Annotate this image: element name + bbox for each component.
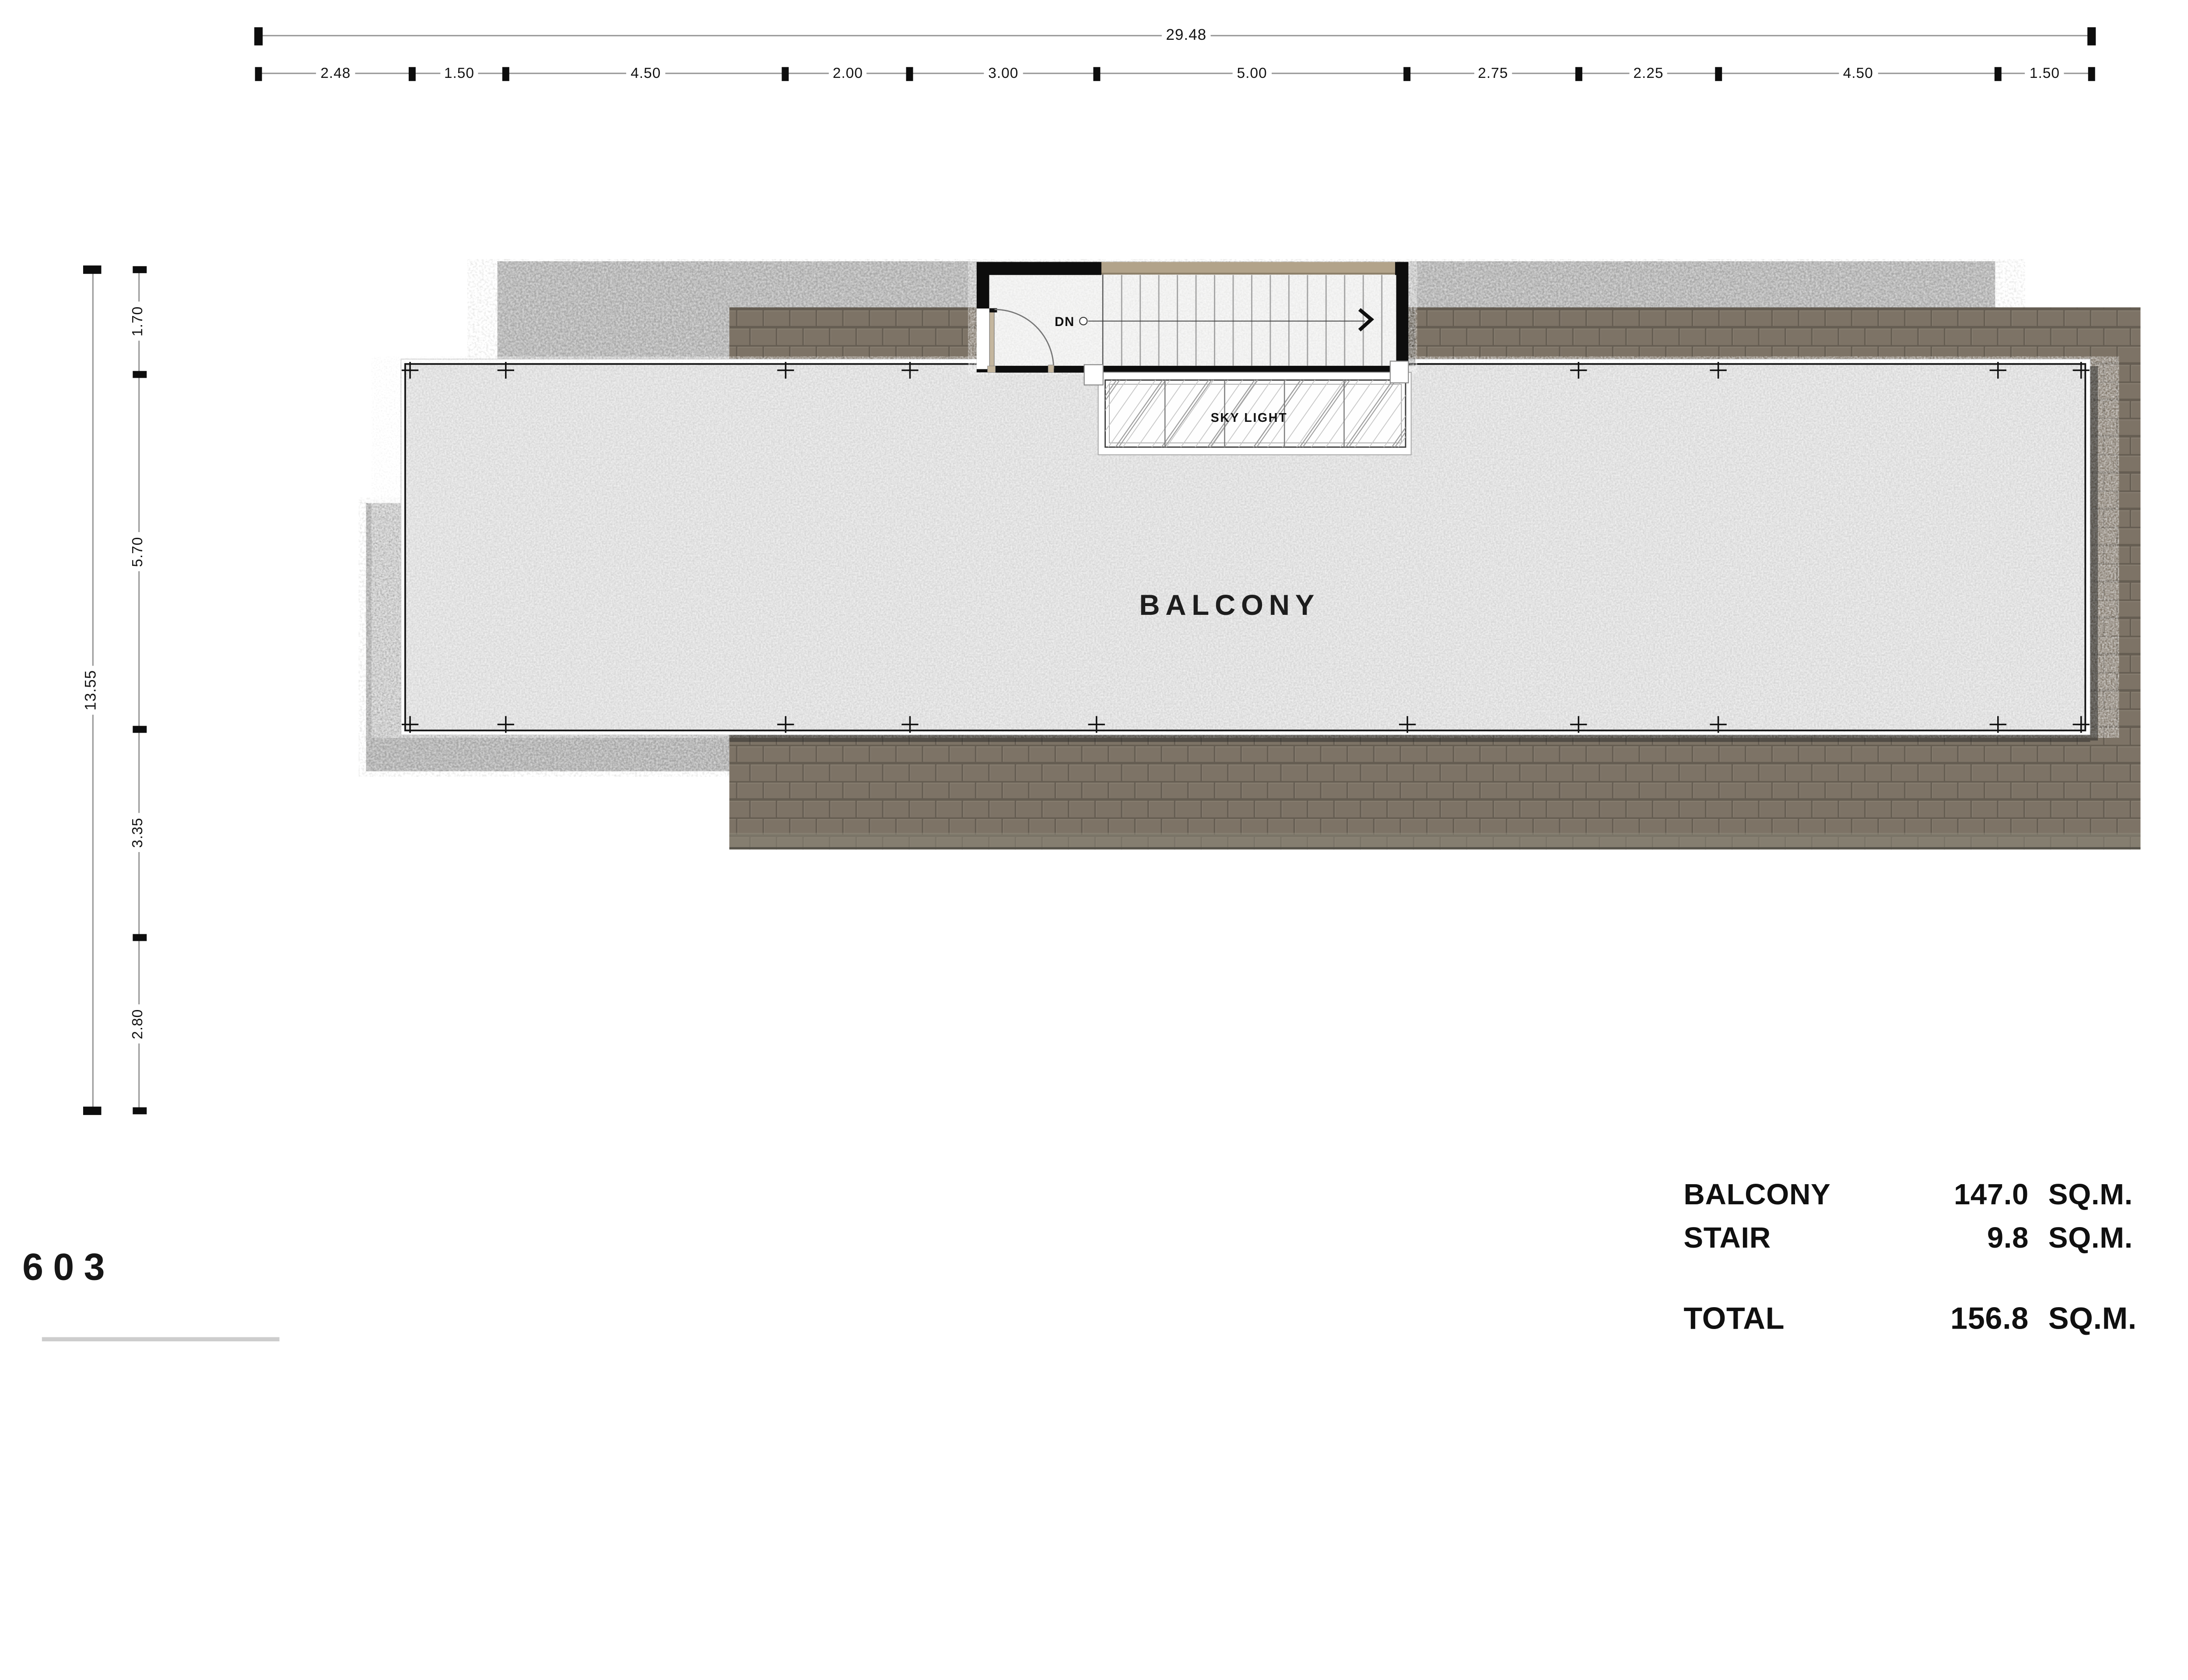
dim-value-total-width: 29.48 <box>1162 28 1211 43</box>
slab-shadow-bottom <box>729 735 2090 742</box>
dim-value: 5.70 <box>131 533 146 571</box>
area-unit: SQ.M. <box>2048 1304 2137 1334</box>
dim-value-total-height: 13.55 <box>84 666 100 715</box>
stair-top-tan-band <box>1101 262 1395 275</box>
dim-tick <box>1995 67 2002 81</box>
dim-tick <box>782 67 789 81</box>
dim-tick <box>1093 67 1100 81</box>
dim-tick <box>907 67 914 81</box>
area-row-balcony: BALCONY 147.0 SQ.M. <box>1683 1181 2159 1210</box>
drawing-number: 603 <box>22 1249 115 1287</box>
dim-value: 3.35 <box>131 814 146 852</box>
skylight-label: SKY LIGHT <box>1211 411 1288 425</box>
dim-tick <box>133 726 147 733</box>
dim-value: 4.50 <box>627 66 665 81</box>
dim-value: 5.00 <box>1233 66 1271 81</box>
skylight-post-right <box>1390 361 1409 382</box>
dim-tick <box>133 372 147 379</box>
door-hinge <box>989 308 997 312</box>
dim-tick <box>2087 27 2096 45</box>
stair-dn-label: DN <box>1055 315 1075 329</box>
dim-tick <box>409 67 416 81</box>
skylight-post-left <box>1084 365 1103 385</box>
dim-value: 4.50 <box>1839 66 1877 81</box>
page-edge-smudge <box>42 1337 280 1342</box>
dim-tick <box>254 27 263 45</box>
dim-value: 3.00 <box>984 66 1023 81</box>
dim-value: 2.00 <box>828 66 867 81</box>
plan-canvas: BALCONY DN SKY LIGHT <box>0 0 2188 1341</box>
dim-line <box>139 269 140 1112</box>
stair-wall-top-right <box>1395 262 1408 275</box>
dim-value: 1.50 <box>2025 66 2064 81</box>
dim-value: 1.50 <box>440 66 478 81</box>
dim-tick <box>1715 67 1722 81</box>
stair-wall-top-left <box>977 262 1101 275</box>
stair-block <box>977 262 1409 373</box>
dim-value: 2.75 <box>1474 66 1512 81</box>
balcony-room-label: BALCONY <box>1139 589 1320 621</box>
area-value: 9.8 <box>1893 1224 2029 1253</box>
area-unit: SQ.M. <box>2048 1181 2133 1210</box>
area-row-total: TOTAL 156.8 SQ.M. <box>1683 1304 2159 1334</box>
area-name: STAIR <box>1683 1224 1893 1253</box>
door-opening <box>977 309 989 369</box>
dim-line <box>259 73 2092 74</box>
area-unit: SQ.M. <box>2048 1224 2133 1253</box>
floor-plan-sheet: BALCONY DN SKY LIGHT 29.48 2.48 1.50 4.5… <box>0 0 2188 1341</box>
dim-tick <box>1575 67 1582 81</box>
area-name: TOTAL <box>1683 1304 1893 1334</box>
dim-tick <box>133 266 147 273</box>
dim-value: 2.80 <box>131 1005 146 1044</box>
stair-direction-start-circle <box>1080 317 1087 325</box>
dim-value: 1.70 <box>131 302 146 341</box>
dim-value: 2.25 <box>1629 66 1668 81</box>
area-row-stair: STAIR 9.8 SQ.M. <box>1683 1224 2159 1253</box>
skylight <box>1084 361 1411 455</box>
stair-wall-right <box>1396 274 1409 372</box>
dim-tick <box>133 934 147 941</box>
dim-tick <box>1404 67 1411 81</box>
dim-value: 2.48 <box>316 66 355 81</box>
dim-tick <box>2088 67 2095 81</box>
area-name: BALCONY <box>1683 1181 1893 1210</box>
dim-tick <box>84 265 102 273</box>
area-value: 147.0 <box>1893 1181 2029 1210</box>
slab-shadow-right <box>2090 366 2098 741</box>
dim-tick <box>84 1107 102 1115</box>
area-value: 156.8 <box>1893 1304 2029 1334</box>
dim-tick <box>133 1108 147 1115</box>
dim-tick <box>502 67 509 81</box>
stair-shadow <box>1408 309 1415 366</box>
door-leaf <box>989 309 994 368</box>
dim-tick <box>255 67 262 81</box>
